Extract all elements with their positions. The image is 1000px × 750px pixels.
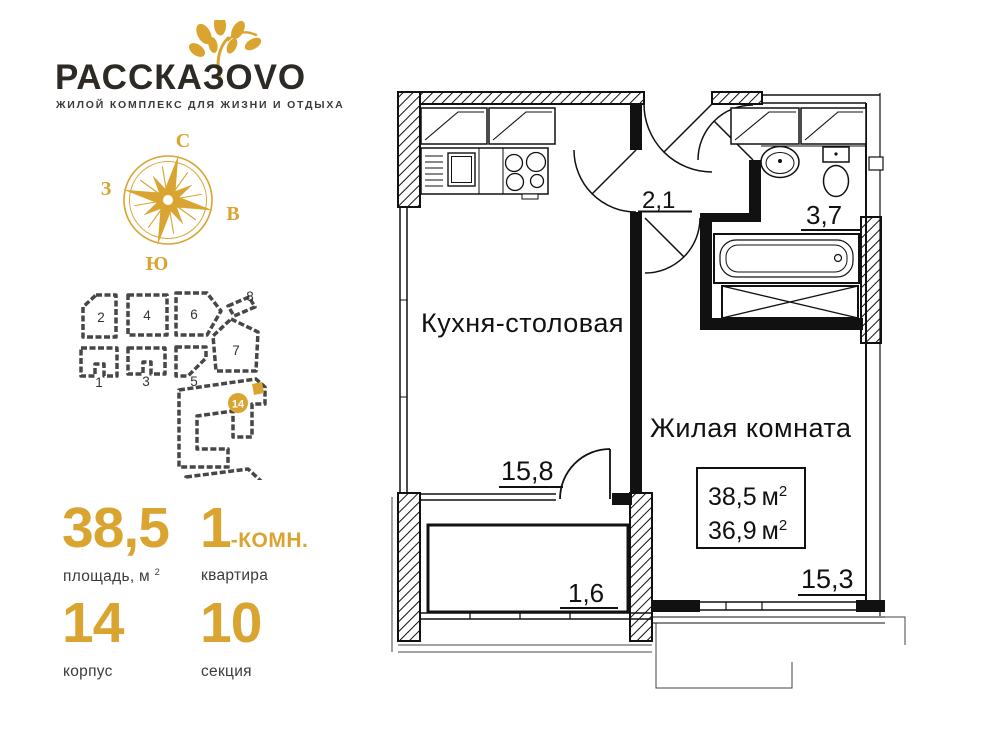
kitchen-room-label: Кухня-столовая [421, 308, 624, 338]
compass-east-label: В [226, 203, 239, 225]
sitemap-label-3: 3 [142, 374, 150, 389]
balcony-partition-window [420, 494, 556, 500]
summary-total-label: 38,5м2 [708, 483, 787, 511]
stat-rooms: 1-КОМН. [200, 500, 308, 557]
balcony-glazing [420, 613, 652, 619]
shaft-icon [722, 286, 858, 318]
floorplan: Кухня-столовая Жилая комната 15,8 2,1 3,… [390, 80, 910, 700]
sitemap-label-8: 8 [246, 289, 254, 304]
sitemap-building-14 [179, 379, 265, 480]
kitchen-door [574, 150, 636, 212]
stat-rooms-label: квартира [201, 567, 268, 585]
stat-section-label: секция [201, 663, 252, 681]
stat-area-value: 38,5 [62, 500, 169, 557]
stat-rooms-value: 1 [200, 500, 231, 557]
kitchen-window [400, 207, 407, 493]
stat-rooms-suffix: -КОМН. [231, 529, 309, 553]
sitemap-marker-label: 14 [232, 399, 245, 411]
kitchen-fixtures [421, 108, 555, 199]
sitemap-building-1 [81, 348, 117, 376]
logo-title: РАССКАЗОVO [55, 58, 306, 98]
balcony-area-label: 1,6 [568, 578, 604, 608]
compass-south-label: Ю [146, 253, 169, 275]
compass-north-label: С [176, 130, 190, 152]
stat-section-value: 10 [200, 595, 261, 652]
washbasin-icon [761, 147, 799, 178]
kitchen-area-label: 15,8 [501, 456, 554, 486]
logo-title-main: РАССКАЗО [55, 58, 254, 97]
compass-west-label: З [101, 178, 112, 200]
logo-tagline: жилой комплекс для жизни и отдыха [56, 99, 345, 111]
hall-area-label: 2,1 [642, 187, 675, 214]
summary-reduced-label: 36,9м2 [708, 517, 787, 545]
flat-card: РАССКАЗОVO жилой комплекс для жизни и от… [0, 0, 1000, 750]
stat-area-label: площадь, м 2 [63, 567, 160, 586]
stat-building-value: 14 [62, 595, 123, 652]
living-window [700, 602, 856, 610]
sitemap-highlight-section [252, 382, 264, 395]
toilet-icon [823, 147, 849, 197]
balcony-door [560, 449, 610, 499]
logo-title-accent: VO [254, 58, 307, 97]
sitemap-building-6 [176, 293, 221, 335]
sitemap-building-5 [176, 347, 206, 376]
sitemap-label-4: 4 [143, 308, 151, 323]
compass-rose: С В Ю З [88, 120, 248, 280]
sitemap-building-3 [128, 348, 165, 374]
stat-building-label: корпус [63, 663, 113, 681]
sitemap-label-6: 6 [190, 307, 198, 322]
sitemap-label-7: 7 [232, 343, 240, 358]
living-door [645, 218, 700, 273]
bathtub-icon [714, 234, 859, 283]
sitemap-label-2: 2 [97, 310, 105, 325]
sitemap-label-1: 1 [95, 375, 103, 390]
sitemap: 2 4 6 8 7 1 3 5 14 [60, 280, 275, 480]
bathroom-area-label: 3,7 [806, 200, 842, 230]
living-room-label: Жилая комната [650, 413, 852, 443]
living-area-label: 15,3 [801, 564, 854, 594]
sitemap-label-5: 5 [190, 374, 198, 389]
